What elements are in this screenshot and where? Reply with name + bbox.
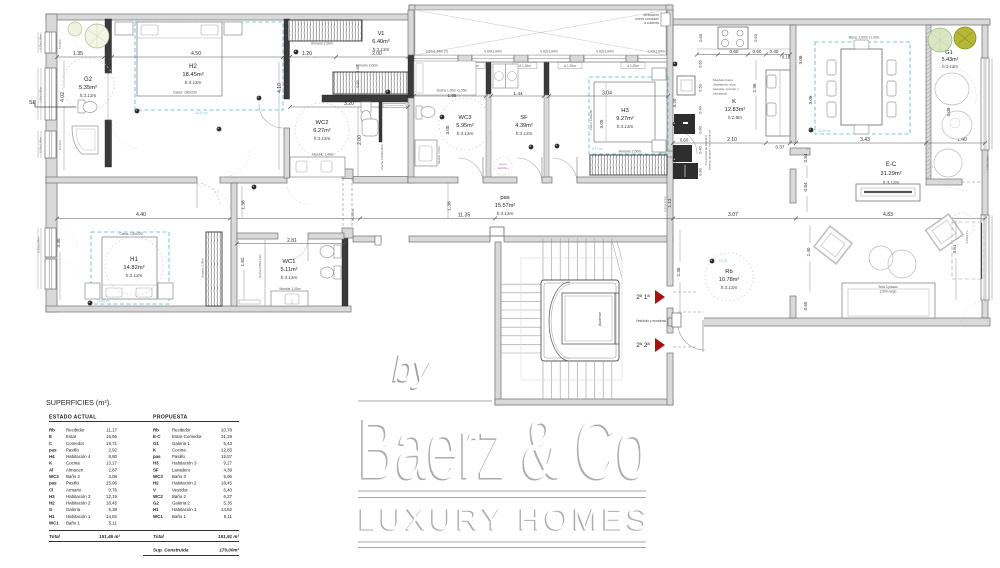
svg-text:WC1: WC1 bbox=[283, 259, 296, 265]
svg-text:6,27: 6,27 bbox=[223, 494, 232, 499]
svg-text:4,39: 4,39 bbox=[223, 467, 232, 472]
svg-text:WC2: WC2 bbox=[49, 474, 59, 479]
svg-text:Mueble 1,00m: Mueble 1,00m bbox=[437, 145, 441, 163]
svg-text:9,27: 9,27 bbox=[223, 461, 232, 466]
svg-text:Pasillo: Pasillo bbox=[66, 481, 79, 486]
svg-text:pas: pas bbox=[49, 447, 57, 452]
svg-text:1.38: 1.38 bbox=[447, 201, 453, 211]
svg-text:h:3.13m: h:3.13m bbox=[457, 131, 474, 136]
svg-text:15.57m²: 15.57m² bbox=[495, 203, 516, 209]
svg-text:Muebles bajos: Muebles bajos bbox=[713, 78, 733, 82]
svg-text:0.60: 0.60 bbox=[753, 49, 762, 54]
svg-text:0.60: 0.60 bbox=[699, 60, 703, 67]
svg-text:6,40: 6,40 bbox=[223, 487, 232, 492]
svg-text:Sofá 3 plazas: Sofá 3 plazas bbox=[878, 285, 898, 289]
svg-text:G2: G2 bbox=[153, 501, 159, 506]
svg-text:4.39m²: 4.39m² bbox=[515, 123, 533, 129]
svg-text:2,50m largo: 2,50m largo bbox=[880, 290, 897, 294]
svg-text:1.95: 1.95 bbox=[448, 93, 457, 98]
svg-text:0,76: 0,76 bbox=[108, 487, 117, 492]
svg-text:6.40m²: 6.40m² bbox=[372, 39, 390, 45]
svg-text:K: K bbox=[732, 99, 736, 105]
svg-text:0,60x1,64m (T): 0,60x1,64m (T) bbox=[426, 50, 448, 54]
svg-text:Total: Total bbox=[49, 534, 61, 539]
svg-text:10.78: 10.78 bbox=[719, 259, 727, 263]
svg-text:H2: H2 bbox=[189, 64, 197, 70]
svg-text:2.40: 2.40 bbox=[806, 247, 811, 256]
svg-text:Al: Al bbox=[49, 467, 53, 472]
svg-text:WC3: WC3 bbox=[459, 115, 472, 121]
svg-text:3.30: 3.30 bbox=[56, 238, 61, 247]
svg-text:0.50: 0.50 bbox=[699, 84, 703, 91]
svg-text:ESTADO ACTUAL: ESTADO ACTUAL bbox=[49, 415, 97, 421]
svg-text:Baño 2: Baño 2 bbox=[172, 494, 186, 499]
svg-text:Galeria 2: Galeria 2 bbox=[172, 501, 190, 506]
svg-text:A 0,60m: A 0,60m bbox=[58, 139, 62, 150]
svg-text:3,08: 3,08 bbox=[108, 474, 117, 479]
svg-text:0.60: 0.60 bbox=[730, 49, 739, 54]
svg-text:1.44: 1.44 bbox=[513, 91, 523, 97]
svg-text:a cubierta: a cubierta bbox=[644, 21, 659, 25]
svg-text:0.40: 0.40 bbox=[770, 49, 779, 54]
svg-text:11,17: 11,17 bbox=[106, 428, 117, 433]
svg-text:basuras, cocción y: basuras, cocción y bbox=[713, 87, 739, 91]
svg-text:2,92: 2,92 bbox=[108, 447, 117, 452]
svg-text:H1: H1 bbox=[49, 514, 55, 519]
svg-text:h:3.13m: h:3.13m bbox=[126, 273, 143, 278]
svg-text:Lavadero: Lavadero bbox=[172, 467, 191, 472]
svg-text:H4: H4 bbox=[49, 454, 55, 459]
svg-text:0.80: 0.80 bbox=[699, 168, 703, 175]
svg-text:G2: G2 bbox=[84, 77, 93, 83]
svg-text:A 1,20m: A 1,20m bbox=[564, 64, 576, 68]
svg-text:2,08x1,96m: 2,08x1,96m bbox=[986, 155, 990, 170]
svg-text:Rb: Rb bbox=[725, 269, 732, 275]
svg-text:0.60: 0.60 bbox=[680, 138, 689, 143]
svg-text:3.07: 3.07 bbox=[728, 212, 738, 218]
svg-text:WC1: WC1 bbox=[49, 521, 59, 526]
svg-text:Comedor: Comedor bbox=[66, 441, 85, 446]
svg-text:0,47x0,27(m): 0,47x0,27(m) bbox=[663, 196, 667, 211]
svg-text:0.40: 0.40 bbox=[699, 106, 703, 113]
svg-text:H3: H3 bbox=[153, 461, 159, 466]
svg-text:Armario 2,00m: Armario 2,00m bbox=[619, 150, 641, 154]
svg-text:pas: pas bbox=[500, 195, 509, 201]
svg-text:Total: Total bbox=[153, 534, 165, 539]
svg-text:h:3.13m: h:3.13m bbox=[281, 275, 298, 280]
svg-text:Baño 1: Baño 1 bbox=[172, 514, 186, 519]
svg-text:campana): campana) bbox=[713, 92, 727, 96]
svg-text:5.43m²: 5.43m² bbox=[942, 57, 959, 63]
svg-text:(lavaplatos, pica,: (lavaplatos, pica, bbox=[713, 83, 736, 87]
svg-text:pas: pas bbox=[49, 481, 57, 486]
svg-text:1,95x1,80m: 1,95x1,80m bbox=[39, 87, 43, 103]
svg-text:Armario 2,00m: Armario 2,00m bbox=[201, 258, 205, 278]
svg-text:Cama: 180x200: Cama: 180x200 bbox=[173, 91, 197, 95]
svg-text:Vestidor: Vestidor bbox=[172, 487, 188, 492]
svg-text:3.04: 3.04 bbox=[602, 91, 612, 97]
svg-text:G1: G1 bbox=[945, 50, 952, 56]
svg-text:Estar-Comedor: Estar-Comedor bbox=[172, 434, 202, 439]
svg-text:pas: pas bbox=[153, 454, 161, 459]
svg-text:SUPERFICIES (m2).: SUPERFICIES (m2). bbox=[46, 398, 111, 407]
svg-text:5,43: 5,43 bbox=[223, 441, 232, 446]
svg-text:Cama: 140x200: Cama: 140x200 bbox=[119, 232, 142, 236]
svg-text:H2: H2 bbox=[153, 481, 159, 486]
svg-text:H1: H1 bbox=[153, 507, 159, 512]
svg-text:1.35: 1.35 bbox=[73, 51, 83, 57]
svg-text:15,96: 15,96 bbox=[106, 481, 118, 486]
svg-text:31.29m²: 31.29m² bbox=[880, 171, 901, 177]
svg-text:2.36: 2.36 bbox=[752, 83, 757, 92]
svg-text:2,87: 2,87 bbox=[108, 467, 117, 472]
svg-text:0.19: 0.19 bbox=[782, 55, 791, 60]
svg-text:4.08: 4.08 bbox=[946, 107, 951, 116]
svg-text:Galeria: Galeria bbox=[66, 507, 81, 512]
svg-text:0,75x1,99m: 0,75x1,99m bbox=[39, 34, 43, 50]
svg-text:2º 2ª: 2º 2ª bbox=[636, 342, 650, 349]
svg-text:0,60x1,64m: 0,60x1,64m bbox=[484, 50, 501, 54]
svg-text:E-C: E-C bbox=[886, 162, 897, 168]
svg-text:Recibidor: Recibidor bbox=[66, 428, 85, 433]
svg-text:Ducha 0,80x1,60m: Ducha 0,80x1,60m bbox=[258, 254, 262, 278]
svg-text:0.84: 0.84 bbox=[803, 182, 808, 191]
svg-text:0.37: 0.37 bbox=[776, 145, 785, 150]
svg-text:Mueble 1,44m: Mueble 1,44m bbox=[312, 153, 334, 157]
svg-text:A 0,95m: A 0,95m bbox=[58, 38, 62, 49]
svg-text:SF: SF bbox=[153, 467, 159, 472]
svg-text:5,35: 5,35 bbox=[223, 501, 232, 506]
svg-text:3.43: 3.43 bbox=[860, 137, 870, 143]
svg-text:Mueble 1,00m: Mueble 1,00m bbox=[280, 287, 301, 291]
svg-text:Baño 3: Baño 3 bbox=[172, 474, 186, 479]
svg-text:14.82m²: 14.82m² bbox=[123, 265, 144, 271]
svg-text:4,03x1,5m: 4,03x1,5m bbox=[965, 230, 969, 244]
svg-text:3.20: 3.20 bbox=[344, 101, 354, 107]
svg-text:H3: H3 bbox=[621, 108, 628, 114]
svg-text:H2: H2 bbox=[49, 501, 55, 506]
svg-text:2.81: 2.81 bbox=[287, 238, 297, 244]
svg-text:1.13: 1.13 bbox=[667, 198, 672, 207]
svg-text:Ascensor: Ascensor bbox=[598, 311, 602, 326]
svg-text:1.38: 1.38 bbox=[241, 200, 247, 210]
svg-text:1,40x1,64m: 1,40x1,64m bbox=[647, 50, 664, 54]
svg-text:13,17: 13,17 bbox=[106, 461, 118, 466]
svg-text:2º 1ª: 2º 1ª bbox=[636, 294, 650, 301]
svg-text:0.84: 0.84 bbox=[803, 153, 808, 162]
svg-text:by: by bbox=[393, 348, 435, 389]
svg-text:PROPUESTA: PROPUESTA bbox=[153, 415, 188, 421]
svg-text:8,90: 8,90 bbox=[108, 454, 117, 459]
svg-text:WC2: WC2 bbox=[316, 120, 329, 126]
svg-text:12.83m²: 12.83m² bbox=[725, 107, 746, 113]
svg-text:14,82: 14,82 bbox=[106, 514, 118, 519]
svg-text:0.40: 0.40 bbox=[699, 146, 703, 153]
svg-text:12,19: 12,19 bbox=[106, 494, 118, 499]
svg-text:h:2.8m: h:2.8m bbox=[728, 115, 742, 120]
svg-text:Cama 140x200: Cama 140x200 bbox=[589, 110, 593, 131]
svg-text:19,71: 19,71 bbox=[106, 441, 118, 446]
svg-text:Almacen: Almacen bbox=[66, 467, 84, 472]
svg-text:18.45 m²: 18.45 m² bbox=[195, 111, 208, 115]
svg-text:1.82: 1.82 bbox=[240, 257, 245, 266]
svg-text:5,11: 5,11 bbox=[224, 514, 233, 519]
svg-text:h:3.13m: h:3.13m bbox=[617, 124, 634, 129]
svg-text:0.68: 0.68 bbox=[698, 33, 703, 42]
svg-text:Habitación 2: Habitación 2 bbox=[172, 481, 197, 486]
svg-text:3.06: 3.06 bbox=[798, 55, 803, 64]
svg-text:9.27 m²: 9.27 m² bbox=[592, 147, 603, 151]
svg-text:5.11m²: 5.11m² bbox=[281, 267, 298, 273]
svg-text:A 1,20m: A 1,20m bbox=[519, 64, 531, 68]
svg-text:Habitación 2: Habitación 2 bbox=[66, 501, 91, 506]
svg-text:h:3.13m: h:3.13m bbox=[80, 93, 97, 98]
svg-text:Rb: Rb bbox=[49, 428, 55, 433]
svg-text:18,45: 18,45 bbox=[221, 481, 233, 486]
svg-text:Ducha 1,00m x1,95m: Ducha 1,00m x1,95m bbox=[437, 89, 468, 93]
svg-text:4.50: 4.50 bbox=[191, 51, 201, 57]
svg-text:Rb: Rb bbox=[153, 428, 159, 433]
svg-text:5.35m²: 5.35m² bbox=[79, 85, 97, 91]
svg-text:eléctrico: eléctrico bbox=[497, 166, 509, 170]
svg-text:5,11: 5,11 bbox=[109, 521, 118, 526]
svg-text:3.05: 3.05 bbox=[599, 119, 604, 128]
svg-text:3.51: 3.51 bbox=[952, 244, 957, 253]
svg-text:H1: H1 bbox=[130, 257, 138, 263]
svg-text:(nevera, almacén, hornos/micro: (nevera, almacén, hornos/micro) bbox=[708, 130, 712, 170]
svg-text:WC1: WC1 bbox=[153, 514, 163, 519]
svg-text:Baño 2: Baño 2 bbox=[66, 474, 80, 479]
svg-text:Habitación 1: Habitación 1 bbox=[66, 514, 91, 519]
svg-text:Estar: Estar bbox=[66, 434, 77, 439]
svg-text:0.60: 0.60 bbox=[699, 126, 703, 133]
svg-text:4.20: 4.20 bbox=[672, 98, 677, 107]
svg-text:10,78: 10,78 bbox=[221, 428, 233, 433]
svg-text:Sup. Construida: Sup. Construida bbox=[153, 548, 189, 553]
svg-text:6.27m²: 6.27m² bbox=[313, 128, 331, 134]
svg-text:5,38: 5,38 bbox=[108, 507, 117, 512]
svg-text:G1: G1 bbox=[153, 441, 159, 446]
svg-text:Baño 1: Baño 1 bbox=[66, 521, 80, 526]
svg-text:31.29 m²: 31.29 m² bbox=[818, 129, 831, 133]
svg-text:4.83: 4.83 bbox=[883, 212, 893, 218]
svg-text:Recibidor: Recibidor bbox=[172, 428, 191, 433]
svg-text:0.60: 0.60 bbox=[753, 33, 758, 42]
svg-text:0,82x1,64m: 0,82x1,64m bbox=[540, 50, 557, 54]
svg-text:Ducha 0,60x0,60m: Ducha 0,60x0,60m bbox=[380, 144, 384, 170]
svg-text:9.27m²: 9.27m² bbox=[616, 116, 634, 122]
svg-text:151,46 m²: 151,46 m² bbox=[99, 534, 120, 539]
svg-text:15,57: 15,57 bbox=[221, 454, 233, 459]
svg-text:Cocina: Cocina bbox=[66, 461, 80, 466]
svg-text:h:3.13m: h:3.13m bbox=[516, 131, 533, 136]
svg-text:WC2: WC2 bbox=[153, 494, 163, 499]
svg-text:Mesa: 2,00m x1,00m: Mesa: 2,00m x1,00m bbox=[849, 36, 880, 40]
svg-text:5,95: 5,95 bbox=[223, 474, 232, 479]
svg-text:A 1,20m: A 1,20m bbox=[627, 64, 639, 68]
svg-text:h:3.13m: h:3.13m bbox=[314, 136, 331, 141]
svg-text:0.55: 0.55 bbox=[803, 301, 808, 310]
svg-text:G: G bbox=[49, 507, 53, 512]
svg-text:E: E bbox=[49, 434, 52, 439]
svg-text:170,00m²: 170,00m² bbox=[219, 548, 239, 553]
svg-text:5.95m²: 5.95m² bbox=[456, 123, 474, 129]
svg-text:Cocina: Cocina bbox=[172, 447, 186, 452]
svg-text:2,90x1,94m: 2,90x1,94m bbox=[37, 237, 41, 253]
svg-text:0.80: 0.80 bbox=[356, 65, 360, 72]
svg-text:Habitación 4: Habitación 4 bbox=[66, 454, 91, 459]
svg-text:Vestíbulo y escaleras: Vestíbulo y escaleras bbox=[636, 319, 667, 323]
svg-text:2.10: 2.10 bbox=[727, 137, 737, 143]
svg-text:h:3.13m: h:3.13m bbox=[497, 211, 514, 216]
svg-text:18.45m²: 18.45m² bbox=[182, 72, 203, 78]
svg-text:3.06: 3.06 bbox=[808, 95, 813, 104]
svg-text:11.35: 11.35 bbox=[458, 213, 471, 219]
svg-text:0,82x1,64m: 0,82x1,64m bbox=[596, 50, 613, 54]
svg-text:h:3.13m: h:3.13m bbox=[185, 80, 202, 85]
svg-text:Armario 2,90m: Armario 2,90m bbox=[311, 42, 333, 46]
svg-text:0,75x1,99m: 0,75x1,99m bbox=[39, 137, 43, 153]
svg-text:14.82 m²: 14.82 m² bbox=[97, 299, 110, 303]
svg-text:V: V bbox=[153, 487, 156, 492]
svg-text:0.60: 0.60 bbox=[356, 80, 360, 87]
svg-text:4.10: 4.10 bbox=[277, 83, 283, 93]
svg-text:Cl: Cl bbox=[49, 487, 53, 492]
svg-text:16,96: 16,96 bbox=[106, 434, 118, 439]
svg-text:2.36: 2.36 bbox=[676, 267, 681, 276]
svg-text:3.05: 3.05 bbox=[445, 125, 450, 134]
svg-text:12,83: 12,83 bbox=[221, 447, 233, 452]
svg-text:14,82: 14,82 bbox=[221, 507, 233, 512]
svg-text:151,91 m²: 151,91 m² bbox=[218, 534, 239, 539]
svg-text:Habitación 3: Habitación 3 bbox=[172, 461, 197, 466]
svg-text:18,45: 18,45 bbox=[106, 501, 118, 506]
svg-text:Pasillo: Pasillo bbox=[172, 454, 185, 459]
svg-text:Pasillo: Pasillo bbox=[66, 447, 79, 452]
svg-text:4.40: 4.40 bbox=[136, 212, 146, 218]
svg-text:WC3: WC3 bbox=[153, 474, 163, 479]
svg-text:E-C: E-C bbox=[153, 434, 161, 439]
svg-text:Armario: Armario bbox=[66, 487, 82, 492]
svg-text:V1: V1 bbox=[378, 31, 385, 37]
svg-text:Galeria 1: Galeria 1 bbox=[172, 441, 190, 446]
svg-text:2.00: 2.00 bbox=[372, 51, 382, 57]
svg-text:h:2,60m: h:2,60m bbox=[351, 209, 355, 221]
svg-text:SF: SF bbox=[520, 115, 528, 121]
svg-text:Habitación 1: Habitación 1 bbox=[172, 507, 197, 512]
svg-text:31,29: 31,29 bbox=[221, 434, 233, 439]
svg-text:Habitación 3: Habitación 3 bbox=[66, 494, 91, 499]
svg-text:4.02: 4.02 bbox=[60, 92, 66, 102]
svg-text:Baerz & Co: Baerz & Co bbox=[358, 401, 648, 497]
svg-text:H3: H3 bbox=[49, 494, 55, 499]
svg-text:h:3.13m: h:3.13m bbox=[721, 285, 738, 290]
svg-text:10.78m²: 10.78m² bbox=[719, 277, 740, 283]
